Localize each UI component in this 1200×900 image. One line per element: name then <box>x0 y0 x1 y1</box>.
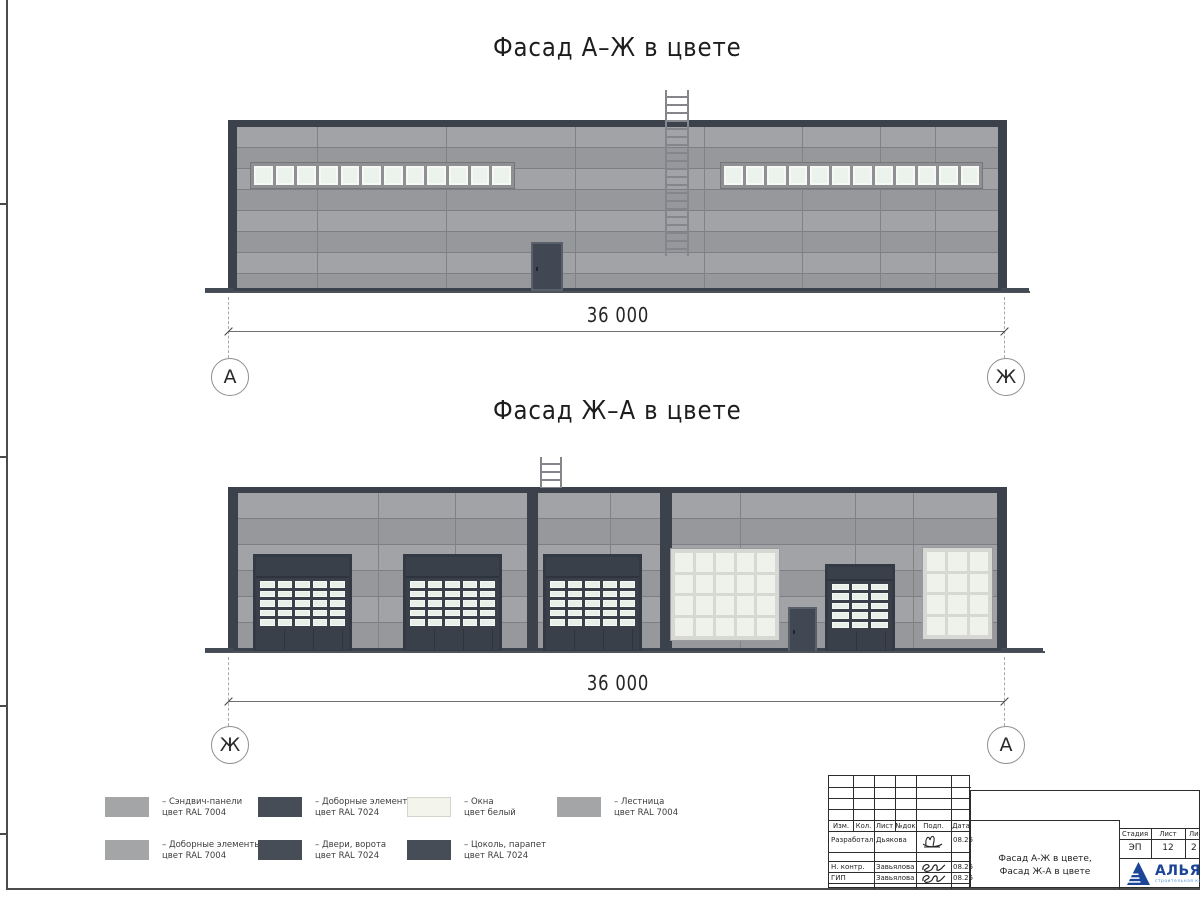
window-pane <box>939 166 958 185</box>
axis-circle-zh: Ж <box>987 358 1025 396</box>
window-pane <box>970 552 988 571</box>
window-pane <box>757 575 775 594</box>
window-pane <box>675 618 693 637</box>
legend-swatch <box>258 840 302 860</box>
corner-column <box>228 487 238 653</box>
window-pane <box>620 581 635 588</box>
gate-bottom-panel <box>546 629 639 650</box>
facade2-building <box>228 487 1007 653</box>
window-pane <box>832 622 849 628</box>
window-pane <box>313 619 328 626</box>
ribbon-window-right <box>720 162 983 189</box>
sheet-header: Лист <box>1151 828 1185 839</box>
window-pane <box>480 610 495 617</box>
signature <box>919 873 949 884</box>
window-pane <box>428 591 443 598</box>
window-pane <box>410 581 425 588</box>
legend-label: – Окнацвет белый <box>464 797 516 820</box>
window-pane <box>737 596 755 615</box>
window-pane <box>948 595 966 614</box>
window-pane <box>313 610 328 617</box>
window-pane <box>896 166 915 185</box>
window-pane <box>313 600 328 607</box>
ribbon-window-glazing <box>724 166 979 185</box>
window-pane <box>767 166 786 185</box>
gate-top-panel <box>546 557 639 578</box>
window-pane <box>620 619 635 626</box>
window-pane <box>480 581 495 588</box>
gate-bottom-panel <box>406 629 499 650</box>
corner-column <box>998 120 1007 293</box>
window-glazing <box>675 553 775 636</box>
window-pane <box>550 600 565 607</box>
facade-column <box>527 487 538 653</box>
window-pane <box>948 552 966 571</box>
window-pane <box>675 596 693 615</box>
window-pane <box>260 610 275 617</box>
panel-joint <box>575 127 576 288</box>
window-pane <box>568 619 583 626</box>
window-pane <box>428 581 443 588</box>
window-pane <box>810 166 829 185</box>
sheet-frame-bottom <box>6 888 1200 890</box>
tb-line <box>829 872 971 873</box>
facade1-building <box>228 120 1007 293</box>
gate-bottom-panel <box>256 629 349 650</box>
tb-line <box>829 852 971 853</box>
window-pane <box>603 591 618 598</box>
sheets-value: 2 <box>1191 843 1197 853</box>
window-pane <box>757 618 775 637</box>
frame-tick <box>0 456 7 458</box>
small-sectional-gate <box>825 564 895 653</box>
roof-ladder <box>665 90 689 256</box>
window-pane <box>716 596 734 615</box>
window-pane <box>341 166 360 185</box>
window-pane <box>410 600 425 607</box>
window-pane <box>428 600 443 607</box>
dimension-line <box>229 701 1005 702</box>
gate-top-panel <box>256 557 349 578</box>
window-pane <box>585 619 600 626</box>
rev-header-cell: Дата <box>951 820 971 831</box>
base-foot <box>1001 288 1029 292</box>
window-pane <box>313 591 328 598</box>
title-block-right: Фасад А-Ж в цвете, Фасад Ж-А в цвете Ста… <box>970 790 1200 888</box>
window-pane <box>927 574 945 593</box>
window-pane <box>550 610 565 617</box>
window-pane <box>550 591 565 598</box>
tb-line <box>829 861 971 862</box>
ground-line <box>205 291 1030 293</box>
window-pane <box>295 581 310 588</box>
legend-swatch <box>407 797 451 817</box>
window-pane <box>278 610 293 617</box>
window-pane <box>278 600 293 607</box>
window-pane <box>445 610 460 617</box>
rev-header-cell: №док <box>895 820 916 831</box>
sheet-frame-left <box>6 0 8 889</box>
window-pane <box>716 553 734 572</box>
window-pane <box>620 591 635 598</box>
window-pane <box>832 593 849 599</box>
window-pane <box>716 575 734 594</box>
window-pane <box>445 581 460 588</box>
window-pane <box>330 600 345 607</box>
window-pane <box>319 166 338 185</box>
panel-joint <box>880 127 881 288</box>
stage-header: Стадия <box>1119 828 1151 839</box>
window-pane <box>757 553 775 572</box>
window-pane <box>568 600 583 607</box>
gate-top-panel <box>406 557 499 578</box>
corner-column <box>997 487 1007 653</box>
personnel-door <box>788 607 817 653</box>
window-pane <box>832 612 849 618</box>
legend-swatch <box>557 797 601 817</box>
window-pane <box>696 596 714 615</box>
tb-line <box>829 883 971 884</box>
window-pane <box>696 575 714 594</box>
role-label: Н. контр. <box>831 863 865 871</box>
panel-joint <box>913 493 914 648</box>
frame-tick <box>0 203 7 205</box>
window-pane <box>927 552 945 571</box>
facade1-title: Фасад А–Ж в цвете <box>228 33 1007 63</box>
legend-label: – Доборные элементыцвет RAL 7004 <box>162 840 261 863</box>
window-pane <box>871 603 888 609</box>
gate-glazing <box>260 581 345 626</box>
window-pane <box>260 591 275 598</box>
rev-header-cell: Подп. <box>916 820 951 831</box>
window-pane <box>746 166 765 185</box>
window-pane <box>276 166 295 185</box>
frame-tick <box>0 705 7 707</box>
name-label: Дьякова <box>876 836 907 844</box>
window-pane <box>585 600 600 607</box>
legend-swatch <box>258 797 302 817</box>
panel-joint <box>378 493 379 648</box>
name-label: Завьялова <box>876 863 914 871</box>
window-pane <box>970 595 988 614</box>
facade1-wall <box>237 127 998 288</box>
window-pane <box>737 553 755 572</box>
window-pane <box>260 581 275 588</box>
window-pane <box>295 591 310 598</box>
window-pane <box>445 591 460 598</box>
door-knob <box>536 267 538 271</box>
window-pane <box>278 581 293 588</box>
window-pane <box>330 619 345 626</box>
window-pane <box>970 574 988 593</box>
window-pane <box>675 575 693 594</box>
window-pane <box>445 619 460 626</box>
window-pane <box>871 584 888 590</box>
window-pane <box>463 600 478 607</box>
window-pane <box>568 610 583 617</box>
window-pane <box>852 603 869 609</box>
tb-line <box>829 798 971 799</box>
window-pane <box>871 612 888 618</box>
window-pane <box>832 166 851 185</box>
window-pane <box>313 581 328 588</box>
window-pane <box>330 581 345 588</box>
panel-joint <box>802 127 803 288</box>
window-pane <box>471 166 490 185</box>
window-pane <box>789 166 808 185</box>
gate-bottom-panel <box>828 631 892 650</box>
window-pane <box>875 166 894 185</box>
window-pane <box>406 166 425 185</box>
window-pane <box>410 610 425 617</box>
window-pane <box>871 622 888 628</box>
ribbon-window-left <box>250 162 515 189</box>
window-pane <box>970 617 988 636</box>
gate-glazing <box>410 581 495 626</box>
base-foot <box>205 288 233 292</box>
legend-label: – Цоколь, парапетцвет RAL 7024 <box>464 840 546 863</box>
window-pane <box>463 581 478 588</box>
shopfront-window <box>922 547 993 640</box>
window-pane <box>585 610 600 617</box>
window-pane <box>362 166 381 185</box>
window-pane <box>384 166 403 185</box>
ground-line <box>205 651 1045 653</box>
shopfront-window <box>670 548 780 641</box>
gate-glazing <box>550 581 635 626</box>
window-pane <box>295 600 310 607</box>
ribbon-window-glazing <box>254 166 511 185</box>
window-pane <box>927 595 945 614</box>
sectional-gate <box>543 554 642 653</box>
window-pane <box>295 610 310 617</box>
window-pane <box>918 166 937 185</box>
legend-swatch <box>407 840 451 860</box>
panel-joint <box>935 127 936 288</box>
window-pane <box>603 581 618 588</box>
tb-line <box>971 820 1119 821</box>
window-pane <box>737 618 755 637</box>
corner-column <box>228 120 237 293</box>
window-pane <box>428 619 443 626</box>
window-pane <box>297 166 316 185</box>
panel-joint <box>704 127 705 288</box>
window-pane <box>278 591 293 598</box>
legend-label: – Сэндвич-панелицвет RAL 7004 <box>162 797 242 820</box>
tb-line <box>829 809 971 810</box>
window-pane <box>428 610 443 617</box>
legend-swatch <box>105 840 149 860</box>
axis-circle-a: А <box>987 726 1025 764</box>
window-pane <box>278 619 293 626</box>
window-pane <box>603 600 618 607</box>
legend-label: – Двери, воротацвет RAL 7024 <box>315 840 386 863</box>
window-pane <box>550 619 565 626</box>
window-pane <box>948 574 966 593</box>
sheet-value: 12 <box>1151 843 1185 853</box>
role-label: Разработал <box>831 836 873 844</box>
window-pane <box>927 617 945 636</box>
signature <box>919 862 949 873</box>
window-pane <box>757 596 775 615</box>
rev-header-cell: Кол. <box>853 820 874 831</box>
name-label: Завьялова <box>876 874 914 882</box>
window-pane <box>620 610 635 617</box>
legend-label: – Доборные элементыцвет RAL 7024 <box>315 797 414 820</box>
window-pane <box>463 610 478 617</box>
window-pane <box>852 612 869 618</box>
window-pane <box>480 591 495 598</box>
gate-glazing <box>832 584 888 628</box>
window-pane <box>330 591 345 598</box>
window-pane <box>620 600 635 607</box>
window-pane <box>463 591 478 598</box>
window-pane <box>260 619 275 626</box>
title-block-left: Изм. Кол. Лист №док Подп. Дата Разработа… <box>828 775 970 888</box>
company-name: АЛЬЯНС <box>1155 863 1200 879</box>
window-pane <box>603 610 618 617</box>
window-pane <box>585 591 600 598</box>
tb-line <box>1119 839 1200 840</box>
window-pane <box>330 610 345 617</box>
gate-top-panel <box>828 567 892 581</box>
window-pane <box>675 553 693 572</box>
window-pane <box>871 593 888 599</box>
window-pane <box>260 600 275 607</box>
window-pane <box>603 619 618 626</box>
window-pane <box>716 618 734 637</box>
window-pane <box>948 617 966 636</box>
dimension-line <box>229 331 1005 332</box>
window-pane <box>724 166 743 185</box>
window-pane <box>410 591 425 598</box>
window-pane <box>480 600 495 607</box>
window-pane <box>550 581 565 588</box>
window-pane <box>737 575 755 594</box>
window-pane <box>427 166 446 185</box>
window-pane <box>254 166 273 185</box>
window-pane <box>961 166 980 185</box>
doc-title: Фасад А-Ж в цвете, Фасад Ж-А в цвете <box>971 853 1119 879</box>
axis-circle-a: А <box>211 358 249 396</box>
window-pane <box>585 581 600 588</box>
company-logo-triangle-icon <box>1127 862 1150 885</box>
sheets-header: Листов <box>1185 828 1200 839</box>
window-pane <box>852 622 869 628</box>
window-pane <box>568 581 583 588</box>
sectional-gate <box>403 554 502 653</box>
tb-line <box>829 787 971 788</box>
axis-circle-zh: Ж <box>211 726 249 764</box>
window-pane <box>832 603 849 609</box>
frame-tick <box>0 833 7 835</box>
tb-line <box>829 831 971 832</box>
window-pane <box>852 593 869 599</box>
dimension-text: 36 000 <box>228 671 1007 695</box>
panel-joint <box>446 127 447 288</box>
window-pane <box>852 584 869 590</box>
stage-value: ЭП <box>1119 843 1151 853</box>
window-pane <box>295 619 310 626</box>
window-pane <box>568 591 583 598</box>
rev-header-cell: Лист <box>874 820 895 831</box>
window-pane <box>480 619 495 626</box>
panel-joint <box>317 127 318 288</box>
role-label: ГИП <box>831 874 846 882</box>
legend-label: – Лестницацвет RAL 7004 <box>614 797 678 820</box>
dimension-text: 36 000 <box>228 303 1007 327</box>
base-foot <box>205 648 233 652</box>
roof-ladder <box>540 457 562 488</box>
window-pane <box>696 618 714 637</box>
tb-line <box>1119 858 1200 859</box>
window-pane <box>696 553 714 572</box>
company-subtitle: строительная компания <box>1155 879 1200 884</box>
window-pane <box>832 584 849 590</box>
sectional-gate <box>253 554 352 653</box>
window-pane <box>449 166 468 185</box>
facade2-title: Фасад Ж–А в цвете <box>228 396 1007 426</box>
base-foot <box>1001 648 1043 652</box>
window-pane <box>463 619 478 626</box>
window-pane <box>410 619 425 626</box>
personnel-door <box>531 242 563 291</box>
parapet <box>228 487 1007 493</box>
legend-swatch <box>105 797 149 817</box>
door-knob <box>793 630 795 634</box>
signature <box>919 833 949 850</box>
window-glazing <box>927 552 988 635</box>
parapet <box>228 120 1007 127</box>
window-pane <box>492 166 511 185</box>
window-pane <box>445 600 460 607</box>
window-pane <box>853 166 872 185</box>
drawing-sheet: Фасад А–Ж в цвете 36 000 А Ж Ф <box>0 0 1200 900</box>
rev-header-cell: Изм. <box>829 820 853 831</box>
